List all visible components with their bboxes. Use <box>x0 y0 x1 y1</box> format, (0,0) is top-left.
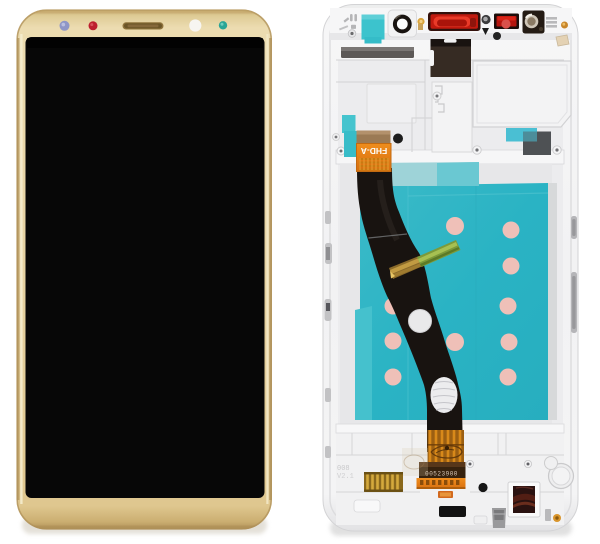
svg-text:V2.1: V2.1 <box>337 473 354 481</box>
svg-text:008: 008 <box>337 465 350 473</box>
svg-text:00523900: 00523900 <box>425 471 458 478</box>
svg-text:FHD-A: FHD-A <box>361 146 387 156</box>
